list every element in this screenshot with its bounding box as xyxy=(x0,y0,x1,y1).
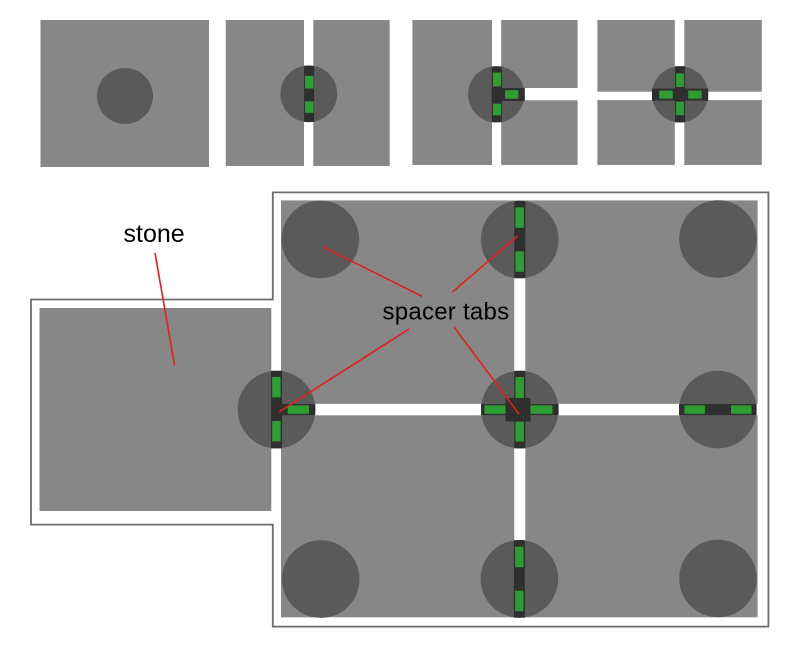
svg-text:stone: stone xyxy=(124,220,185,248)
svg-text:spacer tabs: spacer tabs xyxy=(383,299,510,326)
